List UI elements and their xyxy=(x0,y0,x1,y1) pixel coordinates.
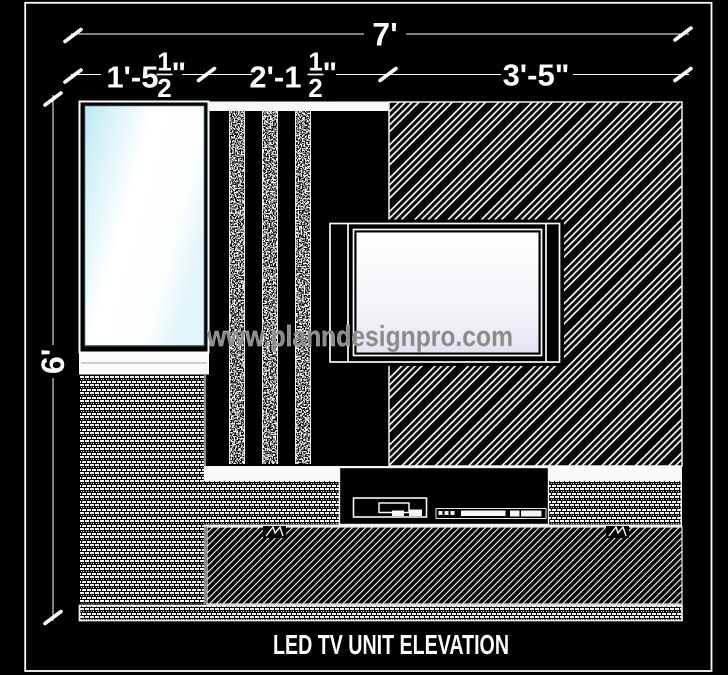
svg-text:2'-1: 2'-1 xyxy=(249,60,301,95)
svg-text:2: 2 xyxy=(157,73,171,103)
svg-text:6': 6' xyxy=(35,349,71,374)
svg-text:3'-5": 3'-5" xyxy=(503,58,570,93)
svg-text:2: 2 xyxy=(308,73,322,103)
svg-text:www.planndesignpro.com: www.planndesignpro.com xyxy=(206,321,513,353)
svg-text:LED TV UNIT ELEVATION: LED TV UNIT ELEVATION xyxy=(273,629,509,660)
svg-text:1: 1 xyxy=(308,47,322,77)
svg-text:": " xyxy=(323,56,338,91)
svg-text:1: 1 xyxy=(157,47,171,77)
svg-text:": " xyxy=(172,56,187,91)
svg-text:7': 7' xyxy=(372,17,397,53)
svg-text:1'-5: 1'-5 xyxy=(106,60,158,95)
